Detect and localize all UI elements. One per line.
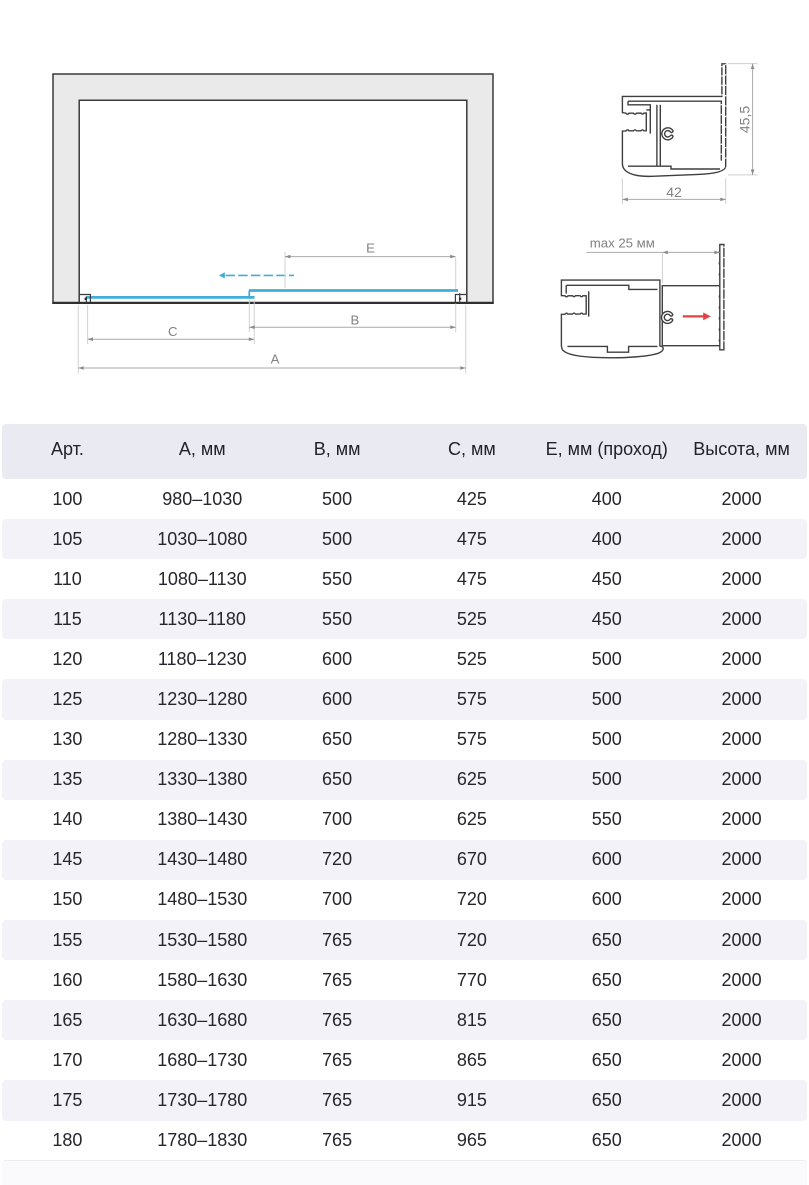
svg-text:A: A	[271, 352, 280, 367]
svg-text:C: C	[168, 324, 178, 339]
svg-text:max 25 мм: max 25 мм	[590, 236, 655, 251]
svg-text:B: B	[351, 313, 360, 328]
svg-text:E: E	[366, 240, 375, 255]
svg-text:45,5: 45,5	[736, 106, 752, 133]
svg-text:42: 42	[666, 184, 682, 200]
